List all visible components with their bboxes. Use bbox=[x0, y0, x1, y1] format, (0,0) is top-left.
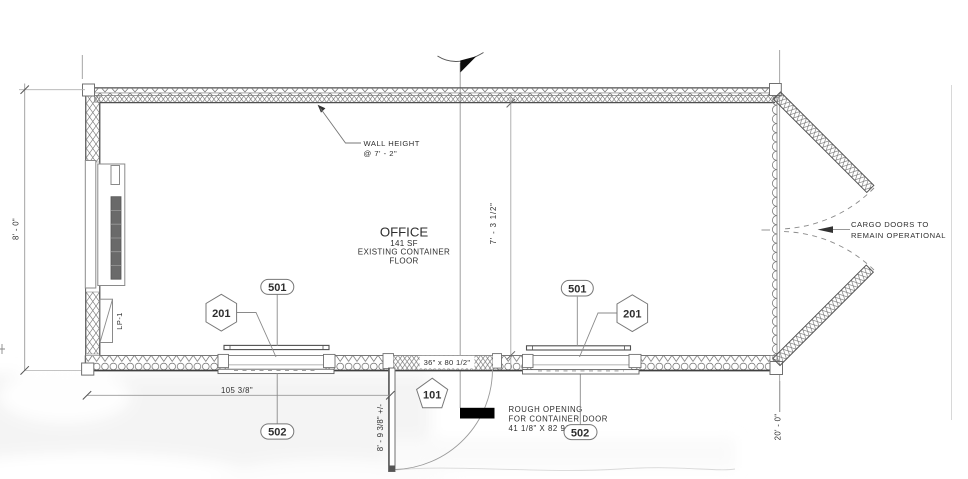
svg-text:OFFICE: OFFICE bbox=[380, 224, 429, 239]
svg-text:502: 502 bbox=[571, 427, 589, 439]
svg-text:ROUGH OPENING: ROUGH OPENING bbox=[509, 405, 583, 414]
svg-text:7' - 3 1/2": 7' - 3 1/2" bbox=[489, 202, 498, 244]
svg-text:141 SF: 141 SF bbox=[390, 239, 418, 248]
svg-text:@ 7' - 2": @ 7' - 2" bbox=[364, 149, 398, 158]
svg-text:8' - 9 3/8" +/-: 8' - 9 3/8" +/- bbox=[376, 404, 385, 452]
svg-text:501: 501 bbox=[268, 282, 286, 294]
svg-text:201: 201 bbox=[212, 308, 230, 320]
svg-text:REMAIN OPERATIONAL: REMAIN OPERATIONAL bbox=[851, 231, 946, 240]
svg-text:101: 101 bbox=[423, 389, 441, 401]
svg-text:EXISTING CONTAINER: EXISTING CONTAINER bbox=[358, 248, 450, 257]
svg-text:8' - 0": 8' - 0" bbox=[12, 218, 21, 240]
svg-text:501: 501 bbox=[568, 283, 586, 295]
svg-text:36" x 80 1/2": 36" x 80 1/2" bbox=[424, 358, 471, 367]
svg-text:201: 201 bbox=[623, 309, 641, 321]
svg-text:105 3/8": 105 3/8" bbox=[221, 386, 253, 395]
svg-text:20' - 0": 20' - 0" bbox=[773, 414, 782, 441]
svg-text:FLOOR: FLOOR bbox=[389, 257, 418, 266]
svg-text:CARGO DOORS TO: CARGO DOORS TO bbox=[851, 220, 929, 229]
svg-text:502: 502 bbox=[268, 427, 286, 439]
svg-text:FOR CONTAINER DOOR: FOR CONTAINER DOOR bbox=[509, 415, 608, 424]
svg-text:LP-1: LP-1 bbox=[115, 312, 124, 330]
svg-text:WALL HEIGHT: WALL HEIGHT bbox=[364, 139, 420, 148]
